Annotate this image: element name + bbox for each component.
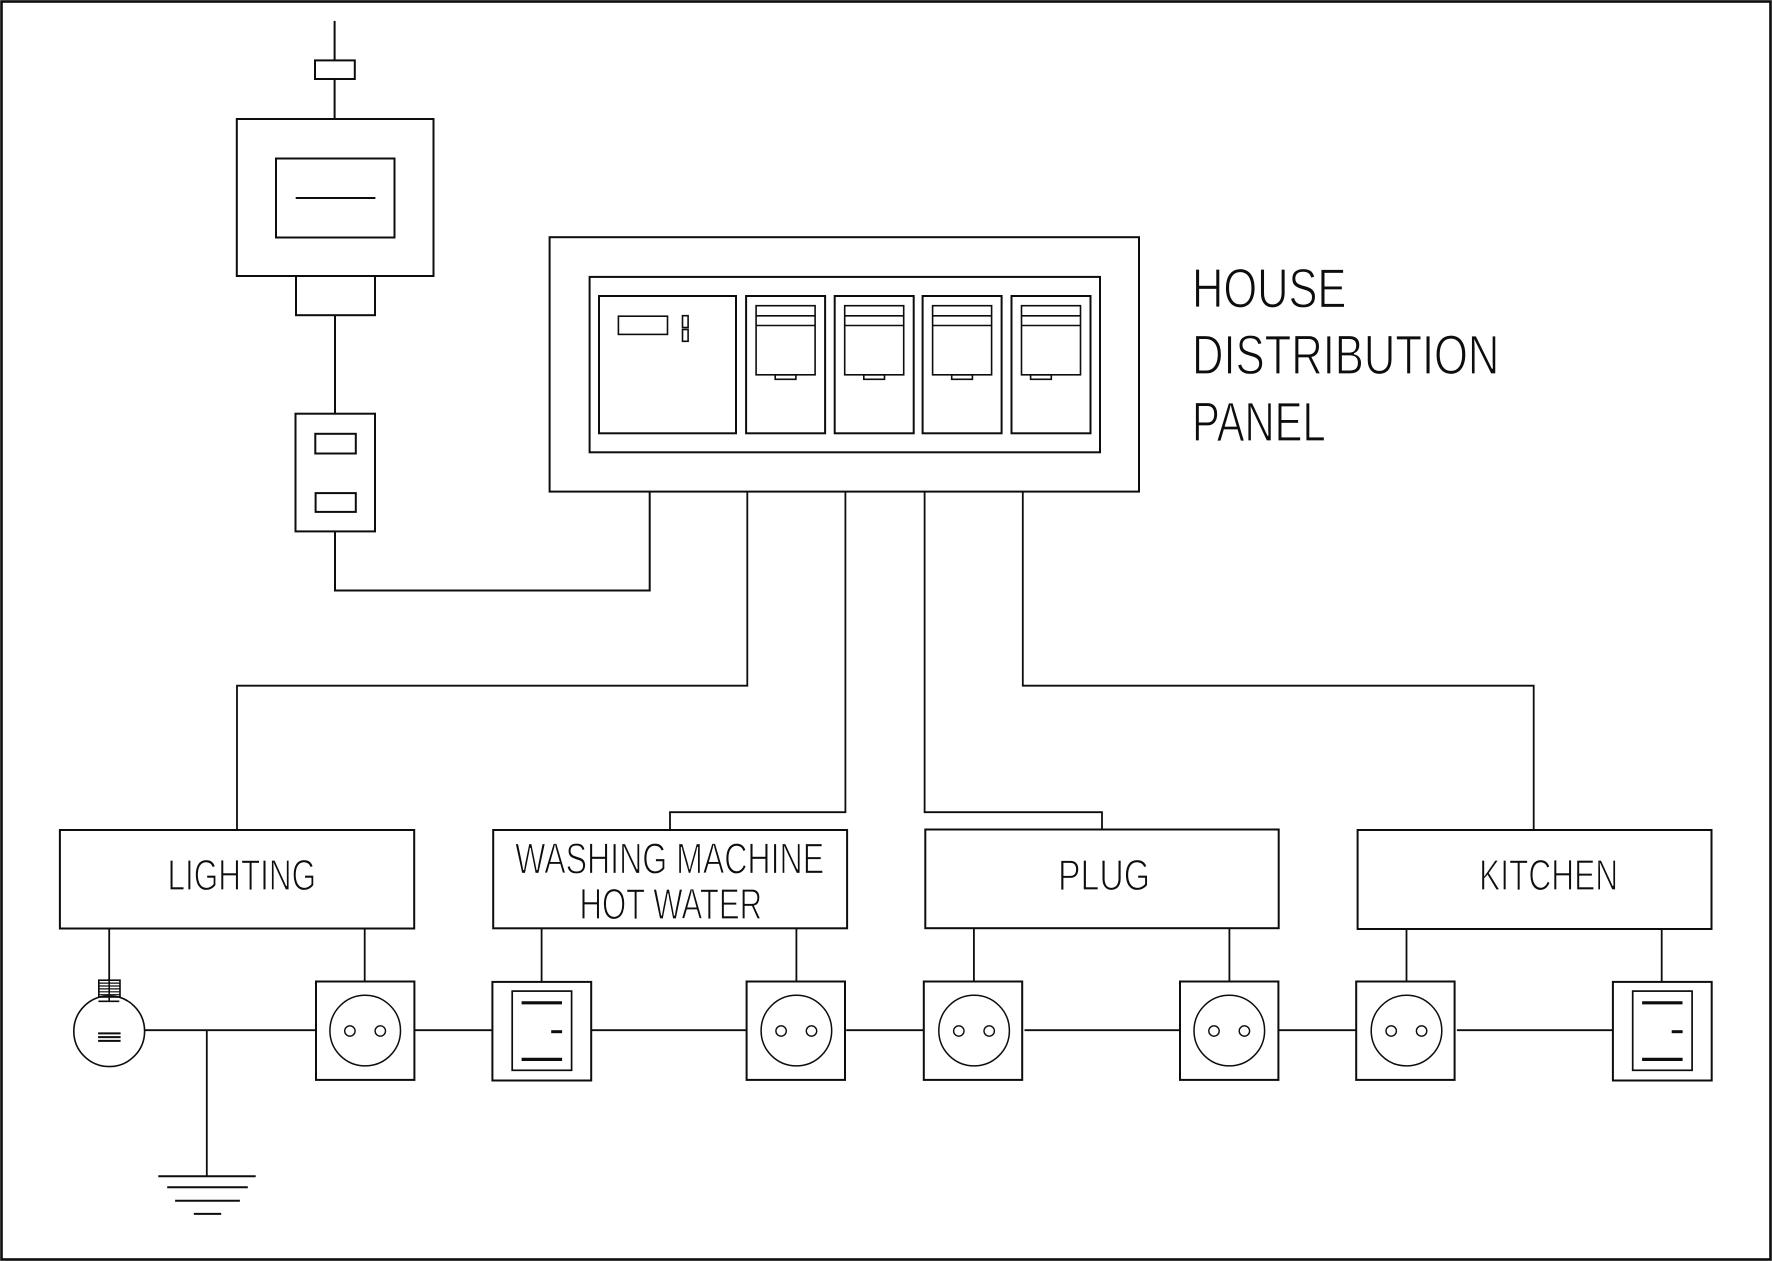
svg-text:WASHING MACHINE: WASHING MACHINE: [515, 836, 824, 884]
svg-text:KITCHEN: KITCHEN: [1479, 852, 1618, 900]
svg-text:HOT WATER: HOT WATER: [580, 881, 763, 929]
svg-text:LIGHTING: LIGHTING: [168, 852, 317, 900]
svg-text:PANEL: PANEL: [1192, 390, 1326, 453]
svg-text:HOUSE: HOUSE: [1192, 256, 1346, 319]
svg-text:DISTRIBUTION: DISTRIBUTION: [1192, 323, 1499, 386]
svg-text:PLUG: PLUG: [1058, 852, 1150, 900]
